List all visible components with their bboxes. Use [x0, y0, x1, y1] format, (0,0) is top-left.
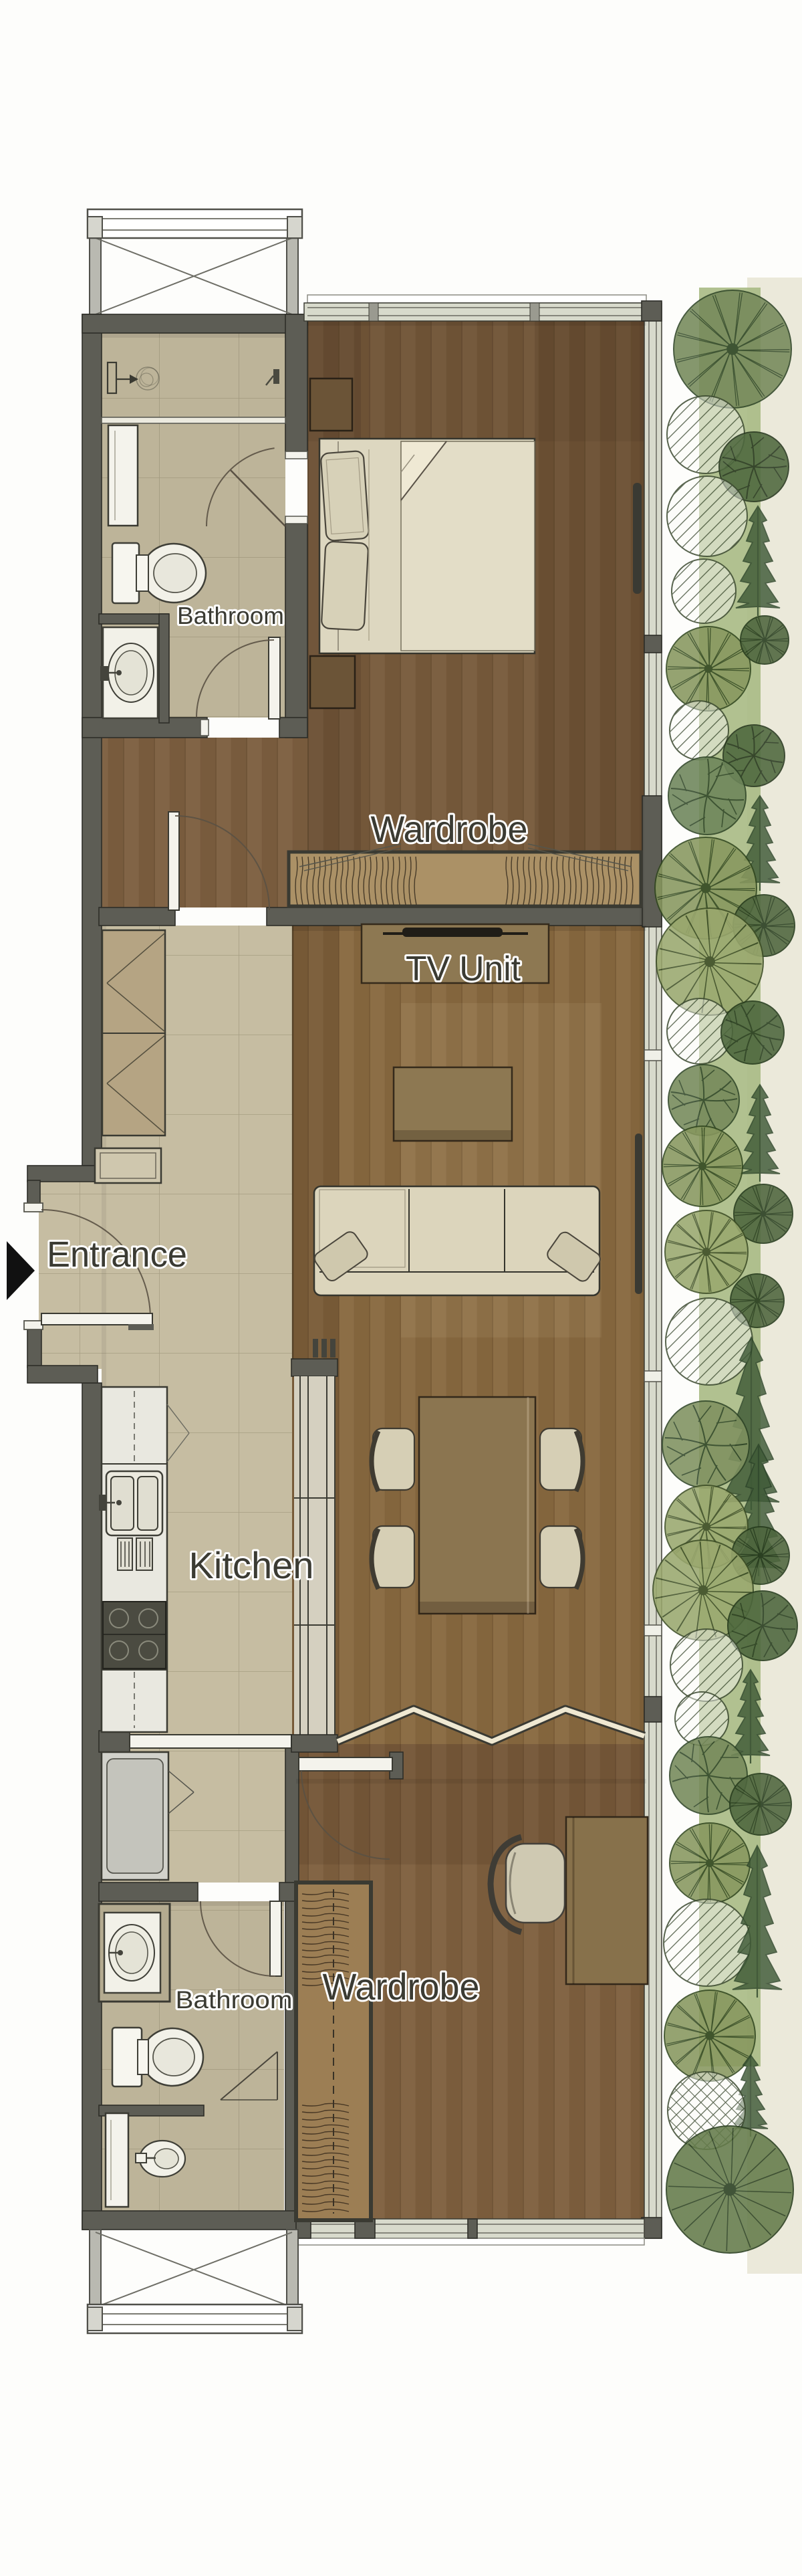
svg-text:Wardrobe: Wardrobe: [323, 1965, 480, 2008]
svg-text:Bathroom: Bathroom: [177, 602, 284, 629]
svg-text:Kitchen: Kitchen: [189, 1544, 314, 1586]
svg-text:Bathroom: Bathroom: [176, 1986, 293, 2014]
svg-text:TV Unit: TV Unit: [406, 950, 521, 988]
svg-text:Wardrobe: Wardrobe: [371, 808, 528, 850]
svg-text:Entrance: Entrance: [47, 1235, 187, 1275]
